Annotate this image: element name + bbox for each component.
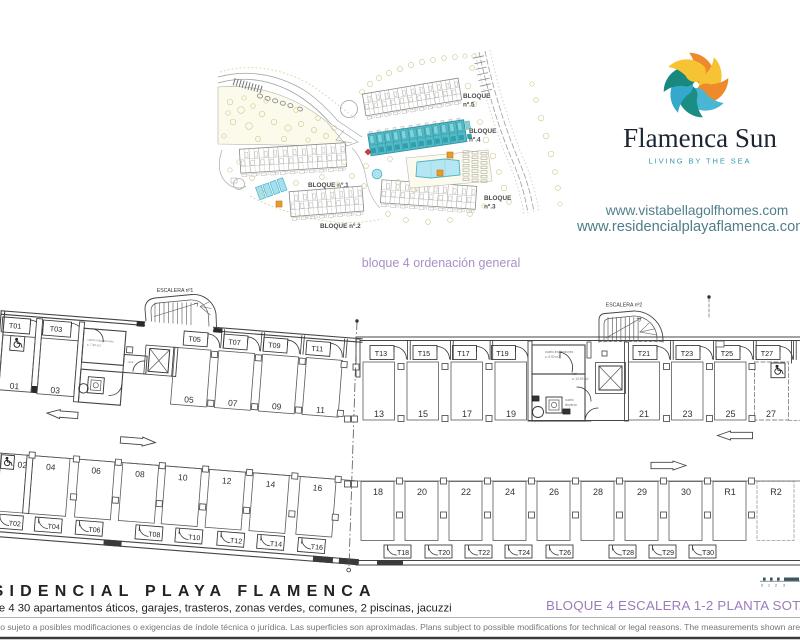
svg-text:T04: T04: [47, 523, 60, 531]
svg-text:T02: T02: [8, 520, 21, 528]
svg-text:T18: T18: [397, 550, 409, 557]
svg-text:12: 12: [222, 475, 232, 486]
svg-text:ESCALERA nº1: ESCALERA nº1: [157, 288, 194, 294]
svg-text:Bloque 4 30 apartamentos ático: Bloque 4 30 apartamentos áticos, garajes…: [0, 603, 452, 615]
svg-text:22: 22: [461, 487, 471, 497]
svg-text:11: 11: [316, 404, 326, 415]
svg-text:23: 23: [682, 409, 692, 419]
svg-text:07: 07: [228, 398, 238, 409]
svg-text:Plano sujeto a posibles modifi: Plano sujeto a posibles modificaciones o…: [0, 622, 800, 632]
svg-text:24: 24: [505, 487, 515, 497]
svg-text:30: 30: [681, 487, 691, 497]
svg-text:T20: T20: [438, 550, 450, 557]
svg-text:08: 08: [135, 469, 145, 480]
svg-text:BLOQUE: BLOQUE: [469, 128, 497, 135]
svg-text:14: 14: [266, 479, 276, 490]
svg-text:T24: T24: [518, 550, 530, 557]
svg-text:s: 5.90 m2: s: 5.90 m2: [545, 355, 560, 359]
svg-text:21: 21: [639, 409, 649, 419]
svg-text:0: 0: [761, 584, 763, 588]
svg-text:18: 18: [373, 487, 383, 497]
svg-text:RESIDENCIAL PLAYA FLAMENCA: RESIDENCIAL PLAYA FLAMENCA: [0, 583, 377, 600]
svg-text:15: 15: [418, 409, 428, 419]
svg-text:29: 29: [637, 487, 647, 497]
svg-text:T09: T09: [268, 340, 281, 350]
svg-text:04: 04: [46, 462, 56, 473]
svg-text:T26: T26: [559, 550, 571, 557]
svg-text:www.residencialplayaflamenca.c: www.residencialplayaflamenca.com: [576, 219, 800, 235]
svg-text:T14: T14: [270, 541, 283, 549]
svg-text:s: 10.99 m2: s: 10.99 m2: [572, 377, 589, 381]
svg-text:17: 17: [462, 409, 472, 419]
svg-text:T15: T15: [418, 349, 430, 358]
svg-text:27: 27: [766, 409, 776, 419]
svg-text:T17: T17: [457, 349, 469, 358]
svg-text:R2: R2: [770, 487, 782, 497]
svg-text:bloque 4 ordenación general: bloque 4 ordenación general: [362, 256, 520, 270]
svg-text:LIVING BY THE SEA: LIVING BY THE SEA: [649, 157, 752, 166]
svg-text:T28: T28: [622, 550, 634, 557]
svg-text:T21: T21: [638, 349, 650, 358]
svg-text:25: 25: [725, 409, 735, 419]
svg-text:T25: T25: [721, 349, 733, 358]
svg-text:BLOQUE nº.2: BLOQUE nº.2: [320, 223, 361, 230]
svg-text:limpieza: limpieza: [565, 403, 577, 407]
svg-text:T19: T19: [496, 349, 508, 358]
svg-text:09: 09: [272, 401, 282, 412]
svg-text:T16: T16: [311, 544, 324, 552]
svg-text:R1: R1: [724, 487, 736, 497]
svg-text:13: 13: [374, 409, 384, 419]
svg-text:20: 20: [417, 487, 427, 497]
svg-text:28: 28: [593, 487, 603, 497]
svg-text:10: 10: [178, 472, 188, 483]
svg-text:www.vistabellagolfhomes.com: www.vistabellagolfhomes.com: [605, 203, 789, 218]
svg-text:cuarto instalaciones: cuarto instalaciones: [545, 350, 574, 354]
svg-text:T05: T05: [188, 334, 201, 344]
svg-text:BLOQUE: BLOQUE: [484, 195, 512, 202]
svg-text:T08: T08: [148, 531, 161, 539]
svg-text:16: 16: [312, 482, 322, 493]
svg-text:Flamenca Sun: Flamenca Sun: [623, 123, 777, 153]
svg-text:T23: T23: [681, 349, 693, 358]
svg-text:T01: T01: [9, 321, 22, 331]
svg-text:T11: T11: [311, 344, 324, 354]
svg-text:T12: T12: [230, 538, 243, 546]
svg-text:3: 3: [783, 584, 785, 588]
svg-text:cuarto: cuarto: [565, 398, 574, 402]
svg-text:T03: T03: [49, 324, 62, 334]
svg-text:05: 05: [184, 394, 194, 405]
svg-text:T22: T22: [478, 550, 490, 557]
svg-text:T13: T13: [375, 349, 387, 358]
svg-text:T07: T07: [228, 337, 241, 347]
svg-text:ESCALERA nº2: ESCALERA nº2: [606, 303, 643, 309]
svg-text:BLOQUE 4 ESCALERA 1-2 PLANTA S: BLOQUE 4 ESCALERA 1-2 PLANTA SOTANO: [546, 598, 800, 613]
svg-text:BLOQUE: BLOQUE: [463, 93, 491, 100]
svg-text:T30: T30: [702, 550, 714, 557]
svg-text:19: 19: [506, 409, 516, 419]
svg-text:03: 03: [50, 385, 60, 396]
svg-text:rack: rack: [128, 360, 134, 364]
svg-text:T06: T06: [88, 527, 101, 535]
svg-text:T27: T27: [761, 349, 773, 358]
svg-text:T10: T10: [188, 534, 201, 542]
svg-text:nº.5: nº.5: [463, 102, 475, 109]
svg-text:nº.4: nº.4: [469, 137, 481, 144]
svg-text:1: 1: [768, 584, 770, 588]
svg-text:T29: T29: [662, 550, 674, 557]
svg-text:06: 06: [91, 465, 101, 476]
svg-text:01: 01: [9, 381, 19, 392]
svg-text:2: 2: [775, 584, 777, 588]
svg-text:26: 26: [549, 487, 559, 497]
